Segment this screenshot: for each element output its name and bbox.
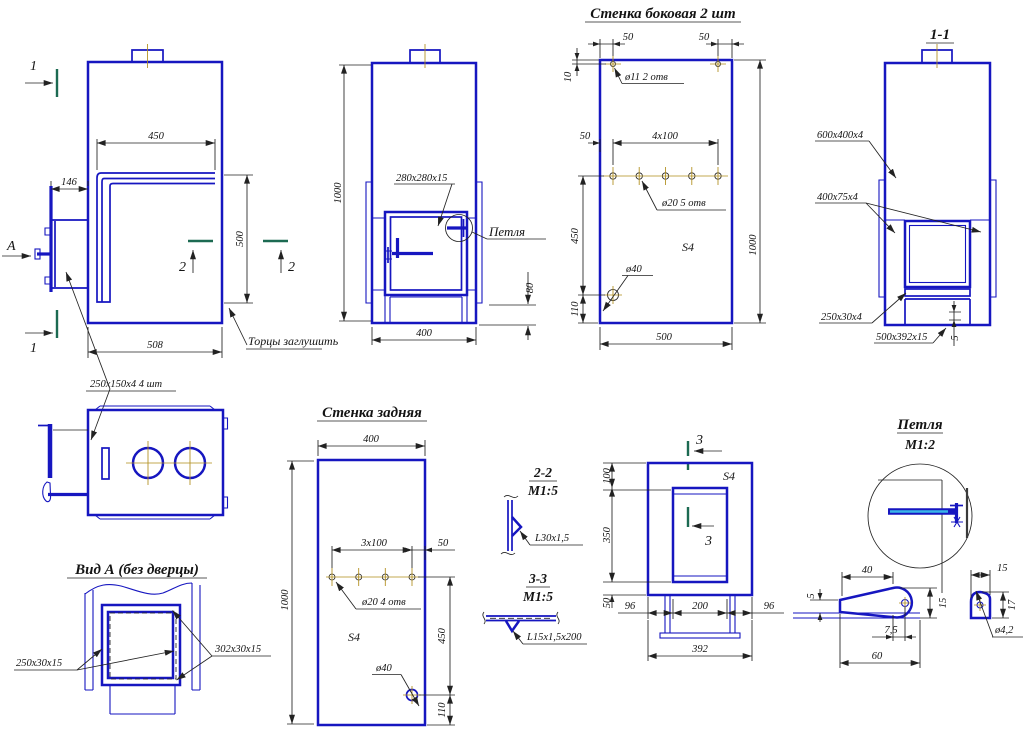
hinge-detail: Петля М1:2 40 5 15 7,5 60 15 17 ø4,2: [793, 417, 1023, 668]
dim-text: 110: [437, 702, 448, 718]
front-wall-outline: [648, 463, 752, 595]
dim-text: 50: [623, 32, 634, 43]
view-title: Стенка боковая 2 шт: [590, 6, 735, 22]
extension-lines: [287, 440, 455, 725]
frame-outer: [102, 605, 180, 685]
section-label: 2: [288, 260, 295, 275]
view-side-wall-plate: Стенка боковая 2 шт 50 50 10 4х100 50 ø1…: [563, 6, 766, 350]
hole-centerlines: [126, 441, 212, 485]
stove-drawing: 1 1 А 2 2 450 146 500 508 Торцы заглушит…: [0, 0, 1024, 738]
door-assembly-detail: [38, 406, 228, 519]
dim-text: 1000: [748, 234, 759, 256]
label-vertical-members: 250х30х15: [16, 658, 62, 669]
dim-text: 96: [764, 601, 775, 612]
section-title: 3-3: [528, 571, 547, 586]
air-slot: [102, 448, 109, 479]
dim-text: 400: [363, 434, 380, 445]
dim-text: 4х100: [652, 131, 678, 142]
stove-body-outline: [88, 62, 222, 323]
label-leader: [642, 181, 657, 210]
section-title: 2-2: [533, 465, 552, 480]
door-label-leader: [438, 184, 452, 226]
door-edge-lines: [878, 480, 942, 593]
label-holes-11: ø11 2 отв: [624, 72, 668, 83]
label-leader: [177, 656, 213, 680]
section-body-outline: [885, 63, 990, 325]
section-label: 3: [704, 534, 712, 549]
side-ears: [366, 182, 482, 303]
angle-strip-flange: [506, 621, 519, 631]
smoke-baffle: [97, 173, 215, 302]
label-leader: [866, 203, 895, 233]
view-title: Вид А (без дверцы): [74, 562, 199, 578]
view-title: Стенка задняя: [322, 405, 422, 421]
firebox-opening: [905, 221, 970, 287]
view-front-wall: 3 3 S4 100 350 50 96 200 96 392: [602, 433, 784, 661]
label-leader: [77, 651, 174, 670]
blueprint-page: 1 1 А 2 2 450 146 500 508 Торцы заглушит…: [0, 0, 1024, 738]
label-angle-15: L15х1,5х200: [526, 632, 582, 643]
extension-lines: [603, 463, 784, 661]
dim-text: 3х100: [360, 538, 387, 549]
dim-text: 50: [699, 32, 710, 43]
thickness-label: S4: [682, 240, 694, 254]
label-horizontal-members: 302х30х15: [214, 644, 261, 655]
label-leader: [872, 293, 906, 323]
dim-text: 1000: [333, 182, 344, 204]
label-hole-40: ø40: [375, 663, 393, 674]
back-plate-edges: [95, 406, 228, 519]
dim-text: 10: [563, 71, 574, 82]
side-wall-outline: [600, 60, 732, 323]
back-wall-outline: [318, 460, 425, 725]
note-plug-ends: Торцы заглушить: [248, 334, 339, 348]
bottom-plate: [905, 289, 970, 296]
stove-front-outline: [372, 63, 476, 323]
hole-40-centerlines: [604, 286, 622, 304]
dim-text: 100: [602, 467, 613, 484]
dim-text: 350: [602, 526, 613, 544]
label-leader: [615, 68, 623, 84]
label-holes-20: ø20 5 отв: [661, 198, 706, 209]
dim-text: 15: [938, 598, 949, 609]
dim-text: 96: [625, 601, 636, 612]
frame-inner: [108, 612, 173, 678]
thickness-label: S4: [723, 469, 735, 483]
dim-text: 50: [438, 538, 449, 549]
detail-scale: М1:2: [904, 437, 935, 452]
dim-text: 40: [862, 565, 873, 576]
view-section-1-1: 1-1 600х400х4 400х75х4 250х30х4 500х392х…: [815, 27, 996, 346]
detail-title: Петля: [896, 417, 942, 433]
hole-40-centerlines: [403, 686, 421, 704]
dim-text: 392: [691, 644, 709, 655]
label-leader: [513, 631, 523, 644]
ears-and-seams: [879, 180, 996, 297]
label-plates: 250х150х4 4 шт: [90, 379, 162, 390]
dim-text: 200: [692, 601, 709, 612]
dim-text: 450: [437, 627, 448, 644]
section-label: 1: [30, 341, 37, 356]
bottom-bar: [660, 633, 740, 638]
dim-text: 15: [997, 563, 1008, 574]
dim-text: 400: [416, 328, 433, 339]
label-hinge: Петля: [488, 224, 525, 239]
door-handle: [392, 238, 433, 258]
note-leader: [229, 308, 247, 345]
view-label: А: [6, 239, 16, 254]
dim-text: 1000: [280, 589, 291, 611]
label-leader: [933, 328, 946, 343]
view-front: Петля 280х280х15 1000 80 400: [333, 44, 546, 345]
section-label: 3: [695, 433, 703, 448]
dim-text: 500: [235, 230, 246, 247]
bracket-hook: [43, 482, 51, 502]
label-channel-size: 400х75х4: [817, 192, 859, 203]
dim-text: 508: [147, 340, 164, 351]
label-door-size: 280х280х15: [396, 173, 447, 184]
plates-leader-down: [91, 389, 110, 440]
thickness-label: S4: [348, 630, 360, 644]
label-hole-42: ø4,2: [994, 625, 1014, 636]
view-side-section: 1 1 А 2 2 450 146 500 508 Торцы заглушит…: [2, 0, 397, 440]
dim-text: 50: [580, 131, 591, 142]
label-holes-20: ø20 4 отв: [361, 597, 406, 608]
firebox-inner: [910, 226, 966, 283]
dim-text: 60: [872, 651, 883, 662]
section-scale: М1:5: [522, 589, 553, 604]
label-leader: [336, 582, 356, 609]
view-title: 1-1: [930, 27, 950, 43]
label-leader: [869, 141, 896, 178]
dim-text: 500: [656, 332, 673, 343]
label-leader: [401, 675, 419, 707]
hidden-plate-dashed: [110, 613, 176, 679]
label-leader-long: [866, 203, 981, 232]
door-frame-lines: [51, 220, 88, 288]
hole-row-centerlines: [603, 167, 728, 185]
label-leader: [520, 531, 530, 545]
panel-seams: [372, 218, 476, 323]
break-lines: [501, 495, 518, 554]
dim-text: 450: [148, 131, 165, 142]
angle-profile-edge: [508, 500, 512, 551]
view-back-wall: Стенка задняя 400 1000 3х100 50 ø20 4 от…: [280, 405, 455, 725]
label-base-size: 500х392х15: [876, 332, 927, 343]
dim-text: 17: [1007, 599, 1018, 610]
dim-text: 5: [806, 593, 817, 598]
section-scale: М1:5: [527, 483, 558, 498]
dim-text: 5: [950, 335, 961, 340]
label-angle-30: L30х1,5: [534, 533, 569, 544]
dim-text: 80: [525, 282, 536, 293]
dim-text: 7,5: [884, 625, 897, 636]
label-body-size: 600х400х4: [817, 130, 864, 141]
view-a-without-door: Вид А (без дверцы) 250х30х15 302х30х15: [14, 562, 271, 714]
hole-centerlines: [605, 56, 726, 72]
label-leader: [77, 649, 102, 670]
section-cut-marks: [57, 69, 288, 338]
opening-strips: [673, 494, 727, 576]
hole-row-centerlines: [326, 568, 420, 586]
door-opening: [673, 488, 727, 582]
dim-text: 110: [570, 301, 581, 317]
dim-text: 50: [602, 597, 613, 608]
dim-text: 146: [61, 177, 78, 188]
section-label: 1: [30, 59, 37, 74]
sections-22-33: 2-2 М1:5 L30х1,5 3-3 М1:5 L15х1,5х200: [483, 465, 587, 644]
door-handle-bar: [37, 0, 397, 254]
section-label: 2: [179, 260, 186, 275]
dim-text: 450: [570, 227, 581, 244]
angle-profile-flange: [512, 517, 521, 536]
label-plate-size: 250х30х4: [821, 312, 863, 323]
label-leader: [603, 276, 628, 312]
label-hole-40: ø40: [625, 264, 643, 275]
